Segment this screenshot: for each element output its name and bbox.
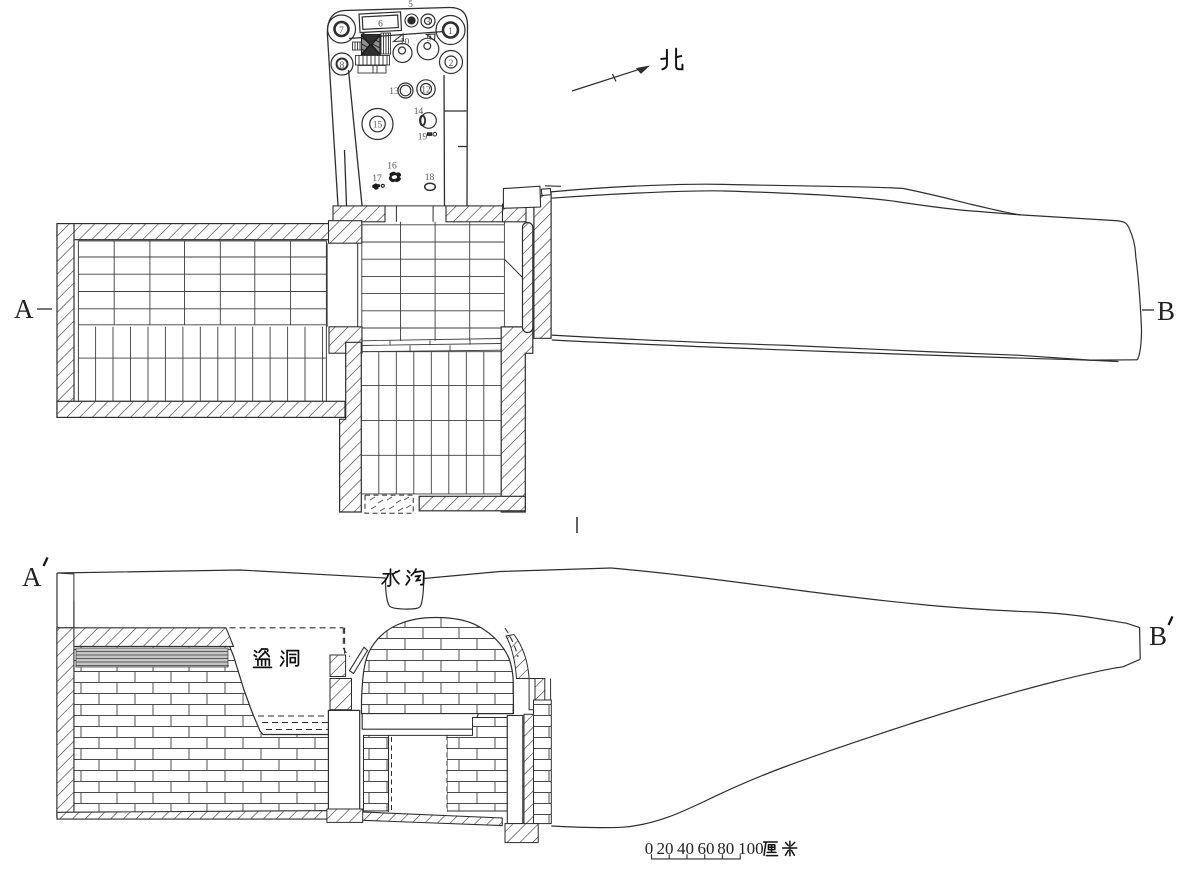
svg-text:80: 80 xyxy=(717,839,734,858)
svg-text:16: 16 xyxy=(387,162,397,172)
svg-text:18: 18 xyxy=(425,173,435,183)
svg-text:5: 5 xyxy=(408,0,413,10)
svg-text:A: A xyxy=(22,562,42,592)
svg-text:B: B xyxy=(1149,621,1167,651)
svg-text:3: 3 xyxy=(426,18,431,28)
svg-text:10: 10 xyxy=(400,38,410,48)
svg-text:14: 14 xyxy=(414,107,424,117)
svg-text:60: 60 xyxy=(698,839,715,858)
svg-text:7: 7 xyxy=(339,26,344,36)
svg-text:1: 1 xyxy=(448,27,453,37)
svg-text:100: 100 xyxy=(738,839,764,858)
svg-text:19: 19 xyxy=(418,133,428,143)
svg-text:12: 12 xyxy=(421,86,431,96)
svg-text:A: A xyxy=(14,294,34,324)
svg-text:13: 13 xyxy=(389,87,399,97)
svg-text:6: 6 xyxy=(378,20,383,30)
svg-text:40: 40 xyxy=(677,839,694,858)
svg-text:20: 20 xyxy=(657,839,674,858)
svg-text:8: 8 xyxy=(340,61,345,71)
svg-text:17: 17 xyxy=(372,174,382,184)
svg-text:B: B xyxy=(1157,296,1175,326)
svg-text:0: 0 xyxy=(645,839,654,858)
svg-text:2: 2 xyxy=(449,59,454,69)
svg-text:15: 15 xyxy=(373,121,383,131)
